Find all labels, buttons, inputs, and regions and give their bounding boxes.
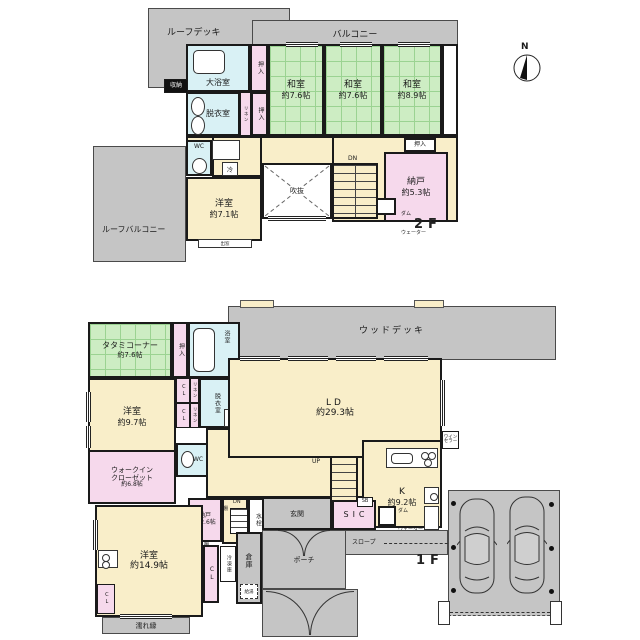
window — [86, 426, 91, 448]
ld-size: 約29.3帖 — [316, 408, 354, 418]
roof-deck-label: ルーフデッキ — [167, 25, 220, 38]
washitsu-b-size: 約7.6帖 — [339, 91, 368, 100]
dressing-1f-label: 脱衣室 — [213, 393, 220, 414]
burner-icon — [102, 561, 110, 569]
walkin-size: 約6.8帖 — [121, 482, 143, 489]
compass-icon — [512, 53, 542, 83]
wash-counter-2f — [212, 140, 240, 160]
freezer-label: 冷凍庫 — [225, 555, 231, 573]
dumbwaiter-1f — [378, 506, 396, 526]
post-dot — [549, 502, 554, 507]
gate-post — [550, 601, 562, 625]
stairs-2f-dn-label: DN — [348, 155, 357, 162]
freezer: 冷凍庫 — [220, 546, 236, 582]
post-dot — [549, 589, 554, 594]
gate-dashed-line — [450, 612, 550, 613]
tatami-name: タタミコーナー — [102, 341, 158, 350]
closet-cl: CL — [176, 378, 190, 403]
car-icon — [507, 495, 547, 597]
balcony-label: バルコニー — [333, 27, 378, 40]
room-tatami-corner: タタミコーナー 約7.6帖 — [88, 322, 172, 378]
post-dot — [451, 588, 456, 593]
dumbwaiter-2f — [376, 198, 396, 215]
window — [398, 42, 430, 47]
closet-cl: CL — [203, 545, 219, 603]
large-bath-label: 大浴室 — [206, 78, 230, 87]
nando-2f-name: 納戸 — [407, 177, 425, 187]
wc-1f-label: WC — [193, 457, 203, 464]
room-walkin-closet: ウォークイン クローゼット 約6.8帖 — [88, 450, 176, 504]
water-heater-label: 給湯 — [245, 589, 254, 595]
bathtub-1f — [193, 328, 215, 372]
window — [336, 356, 376, 361]
fridge-label: 冷 — [227, 165, 233, 174]
washitsu-c-size: 約8.9帖 — [398, 91, 427, 100]
youshitsu-2f-name: 洋室 — [215, 199, 233, 209]
void-fukinuke: 吹抜 — [262, 163, 332, 219]
room-washitsu-a: 和室 約7.6帖 — [268, 44, 324, 136]
shelf-label: 棚 — [223, 505, 228, 512]
stairs-1f-up-label: UP — [312, 458, 320, 465]
ld-name: LD — [326, 398, 344, 408]
closet-cl: CL — [176, 403, 190, 428]
stair-divider — [355, 165, 356, 217]
window — [340, 42, 372, 47]
utility-icon — [430, 493, 438, 501]
window — [120, 614, 172, 619]
youshitsu-149-name: 洋室 — [140, 551, 158, 561]
deck-step — [240, 300, 274, 308]
nureen-veranda: 濡れ縁 — [102, 617, 190, 634]
wc-2f-label: WC — [194, 144, 204, 151]
washitsu-b-name: 和室 — [344, 80, 362, 90]
car-icon — [457, 497, 497, 597]
dressing-2f-label: 脱衣室 — [206, 109, 230, 118]
wine-cellar: ワイン セラー — [442, 431, 459, 449]
window — [93, 520, 98, 550]
bathtub-2f — [193, 50, 225, 74]
porch: ポーチ — [262, 530, 346, 589]
window — [86, 392, 91, 422]
post-dot — [549, 546, 554, 551]
youshitsu-149-size: 約14.9帖 — [130, 561, 168, 571]
slope-label: スロープ — [352, 537, 376, 546]
basin-icon — [191, 97, 205, 116]
linen-label: リネン — [243, 106, 248, 123]
youshitsu-97-name: 洋室 — [123, 407, 141, 417]
void-label: 吹抜 — [288, 187, 306, 195]
utility-box — [424, 487, 439, 504]
oshiire-label: 押入 — [256, 61, 263, 75]
north-label: N — [521, 42, 529, 52]
closet-oshiire-2f-b: 押入 — [251, 92, 268, 136]
mini-kitchen — [98, 550, 118, 568]
room-youshitsu-2f: 洋室 約7.1帖 — [186, 177, 262, 241]
wood-deck-label: ウッドデッキ — [359, 323, 425, 336]
steps-dn-1f — [230, 508, 248, 534]
bay-window-label: 出窓 — [221, 241, 230, 247]
post-dot — [451, 545, 456, 550]
window — [286, 42, 318, 47]
washitsu-a-size: 約7.6帖 — [282, 91, 311, 100]
genkan: 玄関 — [262, 497, 332, 530]
stairs-2f — [332, 163, 378, 219]
bath-1f-label: 浴室 — [222, 330, 231, 344]
toilet-icon — [181, 451, 194, 468]
warehouse-label: 倉庫 — [244, 553, 254, 569]
alcove-strip — [442, 44, 458, 136]
genkan-label: 玄関 — [290, 509, 304, 519]
youshitsu-97-size: 約9.7帖 — [118, 418, 147, 427]
window — [440, 380, 445, 426]
storage-shunou: 収納 — [164, 79, 188, 93]
shoe-box: SB — [357, 497, 373, 507]
window — [288, 356, 328, 361]
nureen-label: 濡れ縁 — [136, 621, 157, 631]
closet-oshiire-hall-2f: 押入 — [404, 138, 436, 152]
closet-linen-2f: リネン — [240, 92, 251, 136]
deck-step — [414, 300, 444, 308]
post-dot — [451, 501, 456, 506]
oshiire-label: 押入 — [256, 107, 263, 121]
room-washitsu-c: 和室 約8.9帖 — [382, 44, 442, 136]
window — [268, 216, 326, 221]
toilet-icon — [192, 158, 207, 174]
washitsu-a-name: 和室 — [287, 80, 305, 90]
tatami-size: 約7.6帖 — [117, 351, 142, 359]
porch-label: ポーチ — [294, 555, 315, 565]
closet-oshiire-2f-a: 押入 — [250, 44, 268, 92]
room-youshitsu-97: 洋室 約9.7帖 — [88, 378, 176, 456]
utility-box — [424, 506, 439, 530]
closet-linen-1f: リネン — [190, 403, 199, 428]
faucet-label: 水栓 — [254, 513, 261, 527]
kitchen-counter — [386, 448, 438, 468]
steps-dn-label: DN — [233, 499, 241, 505]
sic-label: SIC — [343, 510, 368, 519]
room-washitsu-b: 和室 約7.6帖 — [324, 44, 382, 136]
washitsu-c-name: 和室 — [403, 80, 421, 90]
closet-linen-1f: リネン — [190, 378, 199, 403]
basin-icon — [191, 116, 205, 135]
oshiire-hall-label: 押入 — [414, 142, 426, 149]
roof-balcony: ルーフバルコニー — [93, 146, 186, 262]
floor-plan: ルーフデッキ バルコニー 大浴室 押入 和室 約7.6帖 和室 約7.6帖 和室… — [0, 0, 640, 640]
walkin-line1: ウォークイン — [111, 466, 153, 474]
burner-icon — [424, 459, 432, 467]
wood-deck: ウッドデッキ — [228, 306, 556, 360]
water-heater: 給湯 — [240, 584, 258, 599]
fridge-2f: 冷 — [222, 162, 238, 176]
oshiire-1f-label: 押入 — [177, 343, 184, 357]
youshitsu-2f-size: 約7.1帖 — [210, 210, 239, 219]
gate-post — [438, 601, 450, 625]
window — [384, 356, 428, 361]
closet-cl: CL — [97, 584, 115, 614]
closet-oshiire-1f: 押入 — [172, 322, 188, 378]
roof-balcony-label: ルーフバルコニー — [102, 224, 165, 235]
nando-2f-size: 約5.3帖 — [402, 188, 431, 197]
floor2-label: 2F — [414, 217, 442, 232]
floor1-label: 1F — [416, 553, 444, 568]
sb-label: SB — [362, 499, 369, 505]
bay-window: 出窓 — [198, 239, 252, 248]
shunou-label: 収納 — [170, 83, 182, 90]
sink-icon — [391, 453, 413, 464]
window — [240, 356, 280, 361]
